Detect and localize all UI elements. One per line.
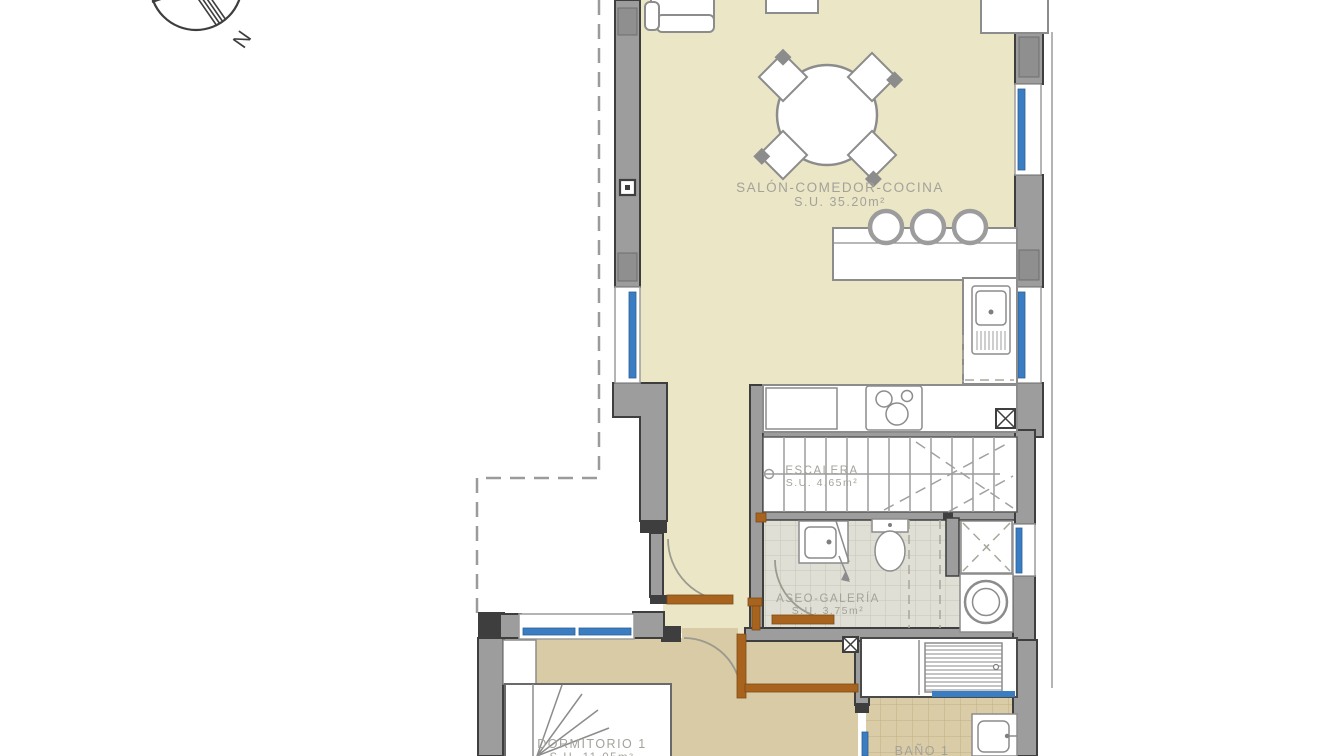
floor-plan-page: SALÓN-COMEDOR-COCINA S.U. 35.20m² ESCALE… [0,0,1319,756]
shower-tray [961,521,1012,573]
label-aseo-area: S.U. 3.75m² [792,605,865,617]
hall-closet-front [745,684,858,692]
label-bano-name: BAÑO 1 [895,744,950,756]
aseo-toilet [872,519,908,571]
label-escalera-area: S.U. 4.65m² [786,477,859,489]
side-table [766,0,818,13]
compass-north-icon: N [150,0,256,53]
wall-socket-symbol [620,180,635,195]
floor-plan-drawing: SALÓN-COMEDOR-COCINA S.U. 35.20m² ESCALE… [0,0,1319,756]
label-dormitorio-area: S.U. 11.05m² [550,752,635,756]
label-aseo-name: ASEO-GALERÍA [776,592,880,605]
sofa [645,0,714,32]
bathtub [925,643,1015,697]
label-dormitorio-name: DORMITORIO 1 [537,737,646,751]
window-right-upper [1015,84,1041,175]
bano-sink [972,714,1017,756]
window-bano-small [862,732,868,756]
washing-machine [960,574,1013,632]
label-salon-area: S.U. 35.20m² [794,195,886,209]
bar-stools [870,211,986,243]
wardrobe [503,640,536,684]
window-aseo [1013,524,1035,576]
window-bedroom [519,614,634,639]
window-left-living [615,287,640,383]
roof-overhang-dashed-line [477,0,599,613]
label-salon-name: SALÓN-COMEDOR-COCINA [736,180,944,195]
compass-north-label: N [229,27,257,53]
label-escalera-name: ESCALERA [785,465,858,477]
shaft-symbol-hall [843,637,858,652]
shaft-symbol-kitchen [996,409,1015,428]
cooktop [866,386,922,430]
window-right-lower [1015,287,1041,383]
terrace-armchair [981,0,1048,33]
